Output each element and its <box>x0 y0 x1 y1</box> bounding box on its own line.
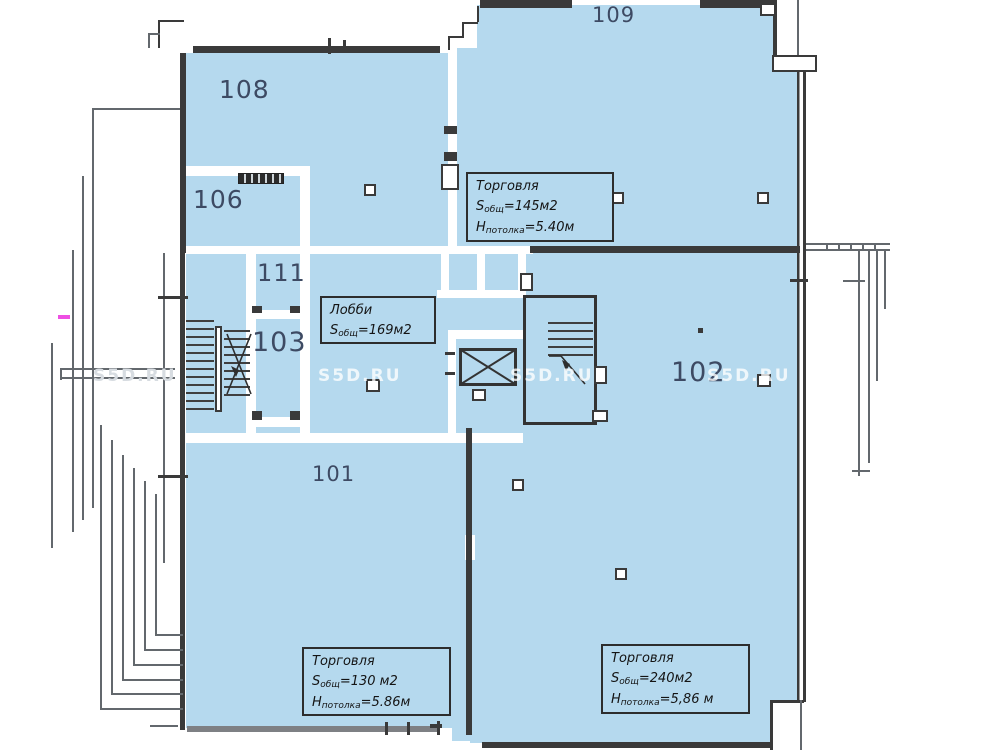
label-box-retail-145: Торговля Sобщ=145м2 Hпотолка=5.40м <box>466 172 614 242</box>
floor-plan: 109 108 106 111 103 101 102 Торговля Sоб… <box>0 0 1000 750</box>
label-box-retail-240: Торговля Sобщ=240м2 Hпотолка=5,86 м <box>601 644 750 714</box>
watermark: S5D.RU <box>510 366 594 386</box>
label-height: Hпотолка=5,86 м <box>611 690 740 711</box>
label-area: Sобщ=169м2 <box>330 321 426 342</box>
label-height: Hпотолка=5.40м <box>476 218 604 239</box>
label-height: Hпотолка=5.86м <box>312 693 441 714</box>
watermark: S5D.RU <box>93 366 177 386</box>
label-area: Sобщ=130 м2 <box>312 672 441 693</box>
elevator-x-icon <box>461 350 515 384</box>
label-box-retail-130: Торговля Sобщ=130 м2 Hпотолка=5.86м <box>302 647 451 716</box>
room-number-111: 111 <box>257 259 306 287</box>
room-number-106: 106 <box>193 185 244 214</box>
room-number-103: 103 <box>252 327 307 358</box>
label-title: Торговля <box>611 649 740 669</box>
label-area: Sобщ=240м2 <box>611 669 740 690</box>
label-box-lobby: Лобби Sобщ=169м2 <box>320 296 436 344</box>
room-number-108: 108 <box>219 75 270 104</box>
label-title: Торговля <box>312 652 441 672</box>
room-number-109: 109 <box>592 3 635 27</box>
watermark: S5D.RU <box>318 366 402 386</box>
room-number-101: 101 <box>312 462 355 486</box>
watermark: S5D.RU <box>707 366 791 386</box>
label-title: Лобби <box>330 301 426 321</box>
label-area: Sобщ=145м2 <box>476 197 604 218</box>
stairs-direction-arrow-icon <box>227 334 251 394</box>
label-title: Торговля <box>476 177 604 197</box>
